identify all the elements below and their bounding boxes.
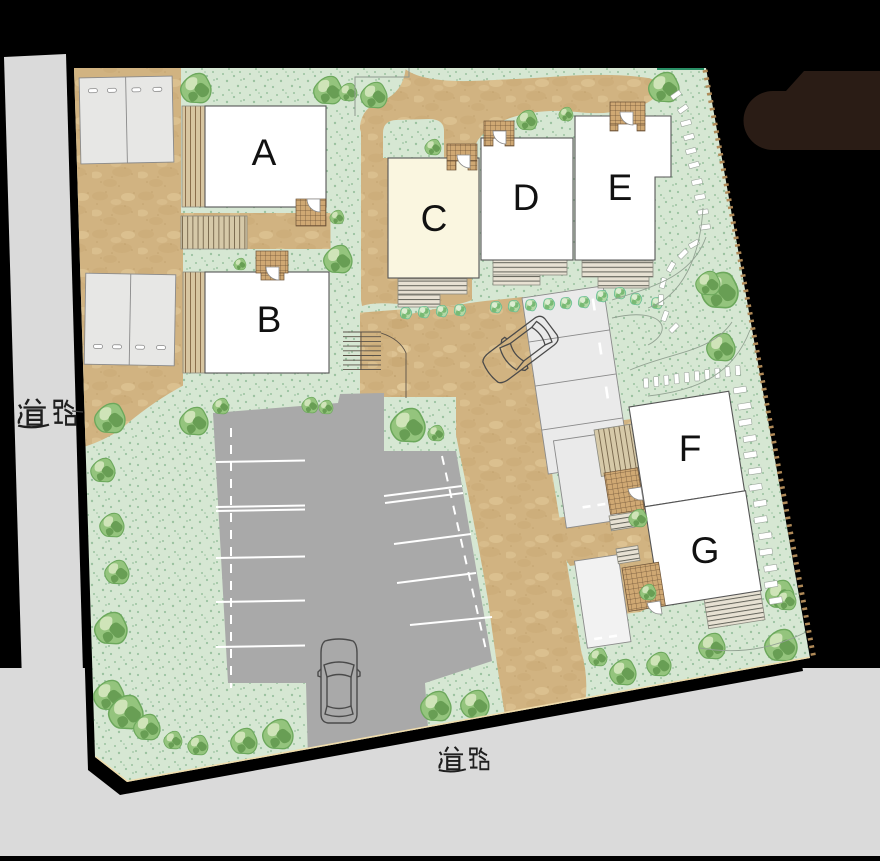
svg-text:G: G [691, 530, 720, 571]
svg-text:B: B [257, 299, 282, 340]
svg-text:C: C [421, 198, 448, 239]
svg-text:A: A [252, 132, 277, 173]
svg-text:E: E [608, 167, 633, 208]
svg-text:F: F [679, 428, 702, 469]
svg-text:D: D [513, 177, 540, 218]
